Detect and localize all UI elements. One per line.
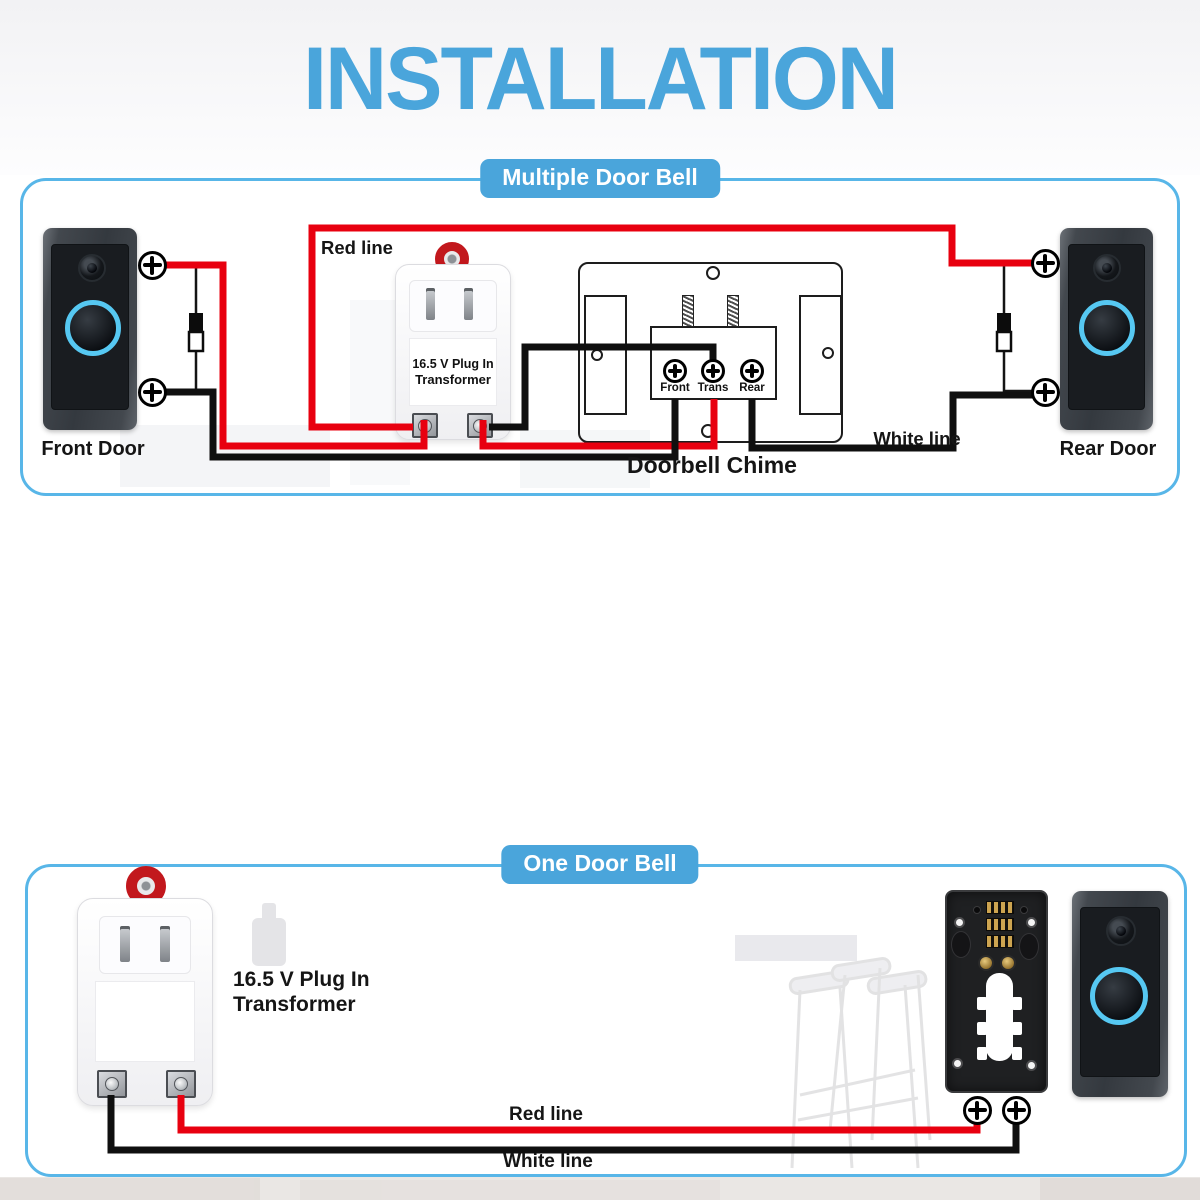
red-line-label: Red line (297, 237, 417, 259)
rear-door-label: Rear Door (1048, 438, 1168, 461)
plate-terminal-right-icon (1002, 1096, 1031, 1125)
chime-terminal-trans-label: Trans (693, 382, 733, 394)
rear-diode-icon (997, 332, 1011, 351)
multiple-doorbell-badge: Multiple Door Bell (480, 159, 720, 198)
rear-door-terminal-bottom-icon (1031, 378, 1060, 407)
front-diode-icon (189, 313, 203, 332)
chime-terminal-rear-label: Rear (732, 382, 772, 394)
red-line-label-2: Red line (456, 1104, 636, 1126)
rear-door-terminal-top-icon (1031, 249, 1060, 278)
transformer2-name-label: Transformer (233, 993, 356, 1017)
doorbell-chime-label: Doorbell Chime (562, 452, 862, 479)
white-line-label: White line (857, 428, 977, 450)
front-door-label: Front Door (28, 438, 158, 461)
wire-red-frontdoor-to-transformer (152, 265, 424, 446)
page-title: INSTALLATION (0, 28, 1200, 131)
chime-terminal-trans-icon (701, 359, 725, 383)
chime-terminal-front-icon (663, 359, 687, 383)
transformer2-voltage-label: 16.5 V Plug In (233, 968, 370, 992)
wire-red-transformer-to-reardoor (312, 228, 1040, 427)
wire-red-trans-terminal-to-transformer (483, 399, 714, 446)
white-line-label-2: White line (458, 1151, 638, 1173)
chime-terminal-front-label: Front (655, 382, 695, 394)
front-door-terminal-top-icon (138, 251, 167, 280)
installation-diagram: INSTALLATION Multiple Door Bell Front Do… (0, 0, 1200, 1200)
chime-terminal-rear-icon (740, 359, 764, 383)
one-doorbell-badge: One Door Bell (501, 845, 698, 884)
front-diode-icon (189, 332, 203, 351)
rear-diode-icon (997, 313, 1011, 332)
front-door-terminal-bottom-icon (138, 378, 167, 407)
plate-terminal-left-icon (963, 1096, 992, 1125)
